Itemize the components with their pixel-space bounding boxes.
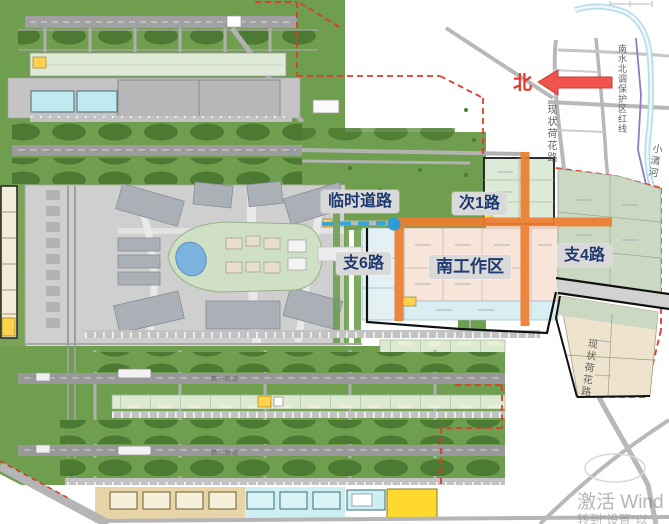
cargo-building [77, 91, 117, 112]
runway-west2-label: 西二跑道 [195, 448, 255, 457]
road-name-water-diversion-redline: 南水北调保护区红线 [616, 44, 629, 134]
north-text: 北 [513, 68, 532, 95]
label-ci1-road: 次1路 [452, 192, 507, 215]
label-zhi4-road: 支4路 [557, 244, 612, 267]
apron-highlight-box [33, 57, 46, 68]
activate-windows-watermark-sub: 转到“设置”以 [577, 509, 648, 524]
temp-road-endpoint-dot [388, 218, 401, 231]
road-name-hehua-north: 现状荷花路 [543, 104, 558, 164]
runway-west1-label: 西一跑道 [195, 374, 255, 383]
south-runway-area [18, 330, 540, 485]
yellow-facility-block [387, 489, 437, 520]
label-zhi6-road: 支6路 [336, 252, 391, 275]
label-temp-road: 临时道路 [321, 190, 399, 213]
cargo-building [31, 91, 74, 112]
label-south-work-area: 南工作区 [429, 255, 511, 279]
airport-plan-map: 临时道路 次1路 支6路 南工作区 支4路 北 现状荷花路 南水北调保护区红线 … [0, 0, 669, 524]
small-buildings-column [46, 190, 60, 328]
